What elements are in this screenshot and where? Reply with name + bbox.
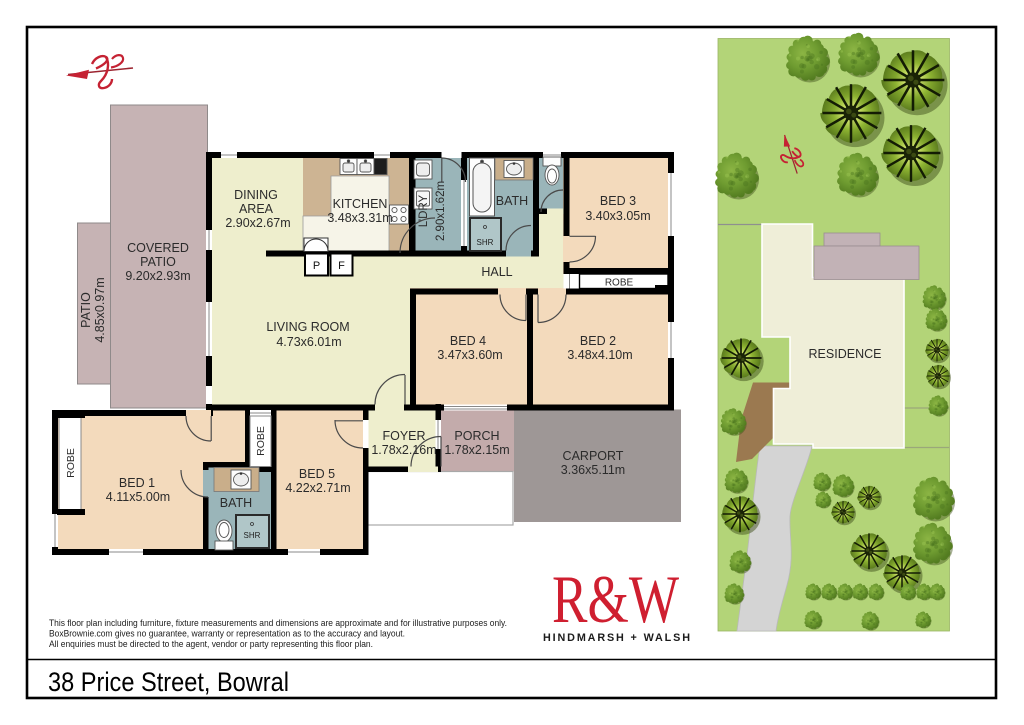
svg-text:BATH: BATH [220,496,252,510]
svg-text:All enquiries must be directed: All enquiries must be directed to the ag… [49,639,373,649]
svg-text:3.48x4.10m: 3.48x4.10m [567,348,632,362]
svg-text:RESIDENCE: RESIDENCE [809,347,882,361]
svg-text:9.20x2.93m: 9.20x2.93m [125,269,190,283]
svg-text:4.85x0.97m: 4.85x0.97m [93,277,107,342]
svg-text:38 Price Street, Bowral: 38 Price Street, Bowral [48,667,289,697]
svg-text:BoxBrownie.com gives no guaran: BoxBrownie.com gives no guarantee, warra… [49,629,405,639]
svg-text:BED 5: BED 5 [299,467,335,481]
svg-text:FOYER: FOYER [382,429,425,443]
svg-text:4.11x5.00m: 4.11x5.00m [106,490,170,504]
svg-text:3.36x5.11m: 3.36x5.11m [561,463,625,477]
svg-text:HINDMARSH + WALSH: HINDMARSH + WALSH [543,632,690,644]
svg-text:PATIO: PATIO [79,292,93,328]
svg-text:DINING: DINING [234,188,278,202]
svg-text:1.78x2.16m: 1.78x2.16m [371,443,436,457]
svg-text:P: P [313,260,320,272]
svg-text:BED 4: BED 4 [450,334,486,348]
svg-text:This floor plan including furn: This floor plan including furniture, fix… [49,618,507,628]
svg-text:F: F [338,260,345,272]
svg-text:SHR: SHR [477,238,494,247]
svg-text:LIVING ROOM: LIVING ROOM [266,320,349,334]
svg-text:AREA: AREA [239,202,274,216]
svg-text:3.40x3.05m: 3.40x3.05m [585,209,650,223]
svg-text:PATIO: PATIO [140,255,176,269]
svg-text:1.78x2.15m: 1.78x2.15m [444,443,509,457]
svg-text:HALL: HALL [481,265,512,279]
svg-text:BATH: BATH [496,194,528,208]
svg-text:COVERED: COVERED [127,241,189,255]
svg-text:CARPORT: CARPORT [563,449,624,463]
svg-text:BED 3: BED 3 [600,194,636,208]
svg-text:BED 2: BED 2 [580,334,616,348]
svg-text:L’DRY: L’DRY [418,194,430,227]
svg-text:4.22x2.71m: 4.22x2.71m [285,481,350,495]
svg-text:ROBE: ROBE [65,448,77,478]
svg-text:4.73x6.01m: 4.73x6.01m [276,335,341,349]
svg-text:R&W: R&W [552,561,680,637]
svg-text:3.48x3.31m: 3.48x3.31m [327,211,392,225]
svg-text:ROBE: ROBE [255,426,267,456]
svg-text:PORCH: PORCH [454,429,499,443]
svg-text:KITCHEN: KITCHEN [333,197,388,211]
svg-text:ROBE: ROBE [605,278,634,289]
svg-text:2.90x1.62m: 2.90x1.62m [435,181,447,241]
svg-text:2.90x2.67m: 2.90x2.67m [225,216,290,230]
svg-text:3.47x3.60m: 3.47x3.60m [437,348,502,362]
svg-text:SHR: SHR [244,531,261,540]
svg-text:BED 1: BED 1 [119,476,155,490]
